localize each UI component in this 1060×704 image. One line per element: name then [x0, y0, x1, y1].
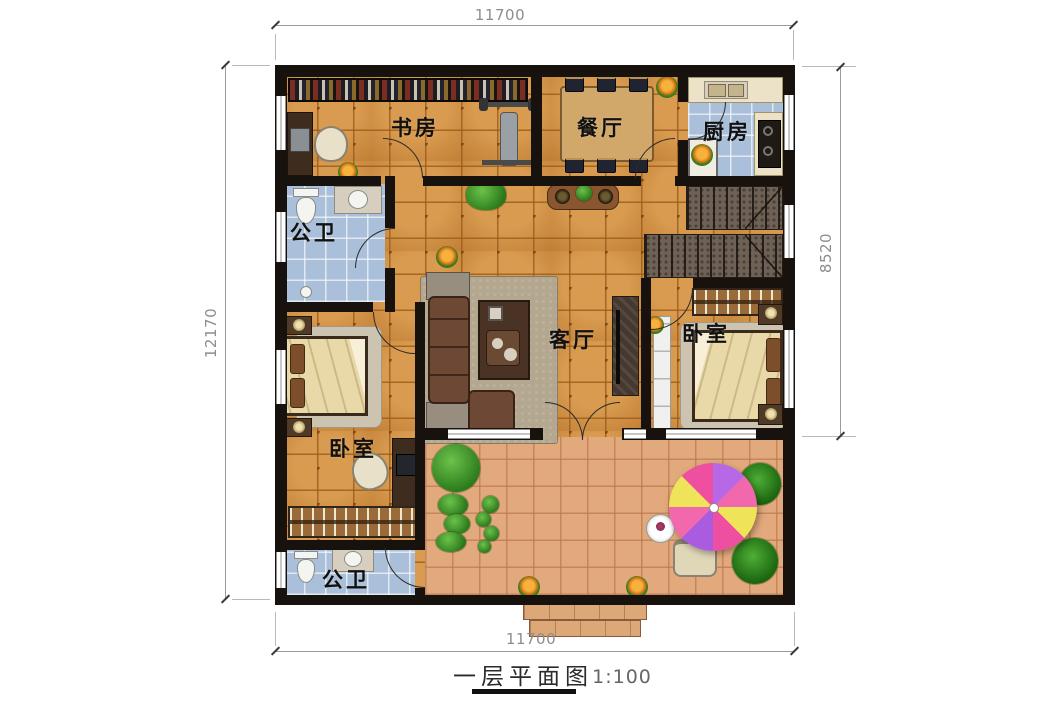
- window-stair-east: [784, 205, 794, 258]
- stove-burner: [763, 146, 773, 156]
- wall-dining-kitchen-a: [678, 65, 688, 102]
- pillow: [290, 344, 305, 374]
- patio-round-bush: [732, 538, 778, 584]
- wall-bedroom-right-north: [693, 278, 795, 288]
- dimension-right-value: 8520: [817, 233, 835, 273]
- dimension-left-value: 12170: [202, 308, 220, 358]
- lamp: [293, 319, 305, 331]
- coffee-table-picture: [488, 306, 503, 321]
- patio-plant-s: [476, 512, 491, 527]
- room-label-kitchen: 厨房: [703, 116, 751, 146]
- extension-line: [802, 436, 856, 437]
- wall-study-dining: [531, 65, 542, 186]
- lamp: [293, 421, 305, 433]
- dimension-line-left: [225, 65, 226, 600]
- tv-screen: [616, 310, 620, 384]
- room-label-bedroom-right: 卧室: [682, 318, 730, 348]
- gym-barbell-bottom: [482, 160, 534, 165]
- patio-plant-s: [482, 496, 499, 513]
- title-underline: [472, 689, 576, 694]
- wall-north-corridor-c: [675, 176, 795, 186]
- window-bedroom-left-west: [276, 350, 286, 404]
- patio-plant-s: [478, 540, 491, 553]
- window-bath-upper-west: [276, 212, 286, 262]
- plan-scale: 1:100: [592, 666, 652, 688]
- kitchen-sink-basin: [708, 84, 726, 97]
- entry-step: [523, 603, 647, 620]
- bedroom-left-laptop: [396, 454, 416, 476]
- room-label-study: 书房: [391, 112, 439, 142]
- dimension-tick: [790, 646, 799, 655]
- floor-plan-canvas: 书房 餐厅 厨房 公卫 客厅 卧室 卧室 公卫 11700 12170 8520…: [0, 0, 1060, 704]
- floor-drain: [300, 286, 312, 298]
- bedroom-left-wardrobe: [288, 506, 422, 538]
- lamp: [765, 307, 777, 319]
- stove-burner: [763, 126, 773, 136]
- study-chair: [314, 126, 348, 162]
- dimension-bottom-value: 11700: [506, 630, 556, 648]
- patio-plant: [438, 494, 468, 516]
- wall-living-west-b: [415, 588, 425, 605]
- extension-line: [802, 66, 856, 67]
- teacup: [492, 338, 503, 349]
- window-living-south-east: [624, 429, 646, 439]
- hallway-plant: [436, 246, 458, 268]
- study-bookshelf: [288, 78, 528, 102]
- stair-winder-line-lower: [745, 235, 782, 277]
- stair-winder-line-upper: [745, 187, 782, 229]
- lamp: [765, 408, 777, 420]
- study-laptop: [290, 128, 310, 152]
- window-bedroom-right-south: [666, 429, 756, 439]
- toilet-tank: [293, 188, 319, 197]
- patio-plant: [444, 514, 470, 534]
- pillow: [290, 378, 305, 408]
- wall-north-corridor-a: [275, 176, 381, 186]
- room-label-bedroom-left: 卧室: [329, 433, 377, 463]
- room-label-dining: 餐厅: [577, 112, 625, 142]
- plan-title: 一层平面图: [453, 657, 593, 691]
- extension-line: [275, 612, 276, 646]
- dimension-top-value: 11700: [475, 6, 525, 24]
- dimension-tick: [221, 594, 230, 603]
- extension-line: [232, 65, 270, 66]
- wall-bath-upper-east-b: [385, 268, 395, 312]
- console-plant: [576, 185, 592, 201]
- patio-bush-large: [432, 444, 480, 492]
- pillow: [766, 338, 781, 372]
- wall-bath-upper-south: [275, 302, 373, 312]
- dining-chair: [597, 77, 616, 92]
- dimension-tick: [789, 20, 798, 29]
- window-living-south-west: [448, 429, 530, 439]
- bath-upper-sink-bowl: [348, 190, 368, 209]
- room-label-bath-upper: 公卫: [290, 217, 338, 247]
- wall-bedroom-right-west: [641, 278, 651, 440]
- wall-bath-upper-east-a: [385, 176, 395, 228]
- patio-table-decor: [656, 522, 665, 531]
- dining-chair: [565, 77, 584, 92]
- living-sofa: [428, 296, 470, 404]
- console-bowl: [555, 189, 570, 204]
- gym-bench: [500, 112, 518, 166]
- console-bowl: [598, 189, 613, 204]
- extension-line: [232, 599, 270, 600]
- patio-plant: [436, 532, 466, 552]
- room-label-bath-lower: 公卫: [322, 564, 370, 594]
- teacup: [504, 348, 517, 361]
- toilet-tank: [294, 551, 318, 559]
- dining-chair: [565, 158, 584, 173]
- kitchen-sink-basin: [728, 84, 744, 97]
- coffee-table-tray: [486, 330, 520, 366]
- dining-chair: [597, 158, 616, 173]
- gym-plate-left: [479, 98, 488, 111]
- dining-chair: [629, 77, 648, 92]
- fridge-plant: [691, 144, 713, 166]
- room-label-living: 客厅: [549, 324, 597, 354]
- patio-plant-s: [484, 526, 499, 541]
- wall-living-west-a: [415, 302, 425, 548]
- window-bath-lower-west: [276, 552, 286, 588]
- extension-line: [793, 30, 794, 60]
- dining-plant: [656, 76, 678, 98]
- wall-north-corridor-b: [423, 176, 641, 186]
- dimension-line-top: [275, 25, 793, 26]
- window-kitchen-east: [784, 95, 794, 150]
- window-bedroom-right-east: [784, 330, 794, 408]
- extension-line: [794, 612, 795, 646]
- dimension-line-right: [840, 67, 841, 437]
- window-study-west: [276, 96, 286, 150]
- gym-barbell-top: [482, 102, 534, 107]
- dimension-line-bottom: [275, 651, 795, 652]
- extension-line: [275, 34, 276, 60]
- umbrella-pole: [709, 503, 719, 513]
- wall-exterior-bottom: [275, 595, 795, 605]
